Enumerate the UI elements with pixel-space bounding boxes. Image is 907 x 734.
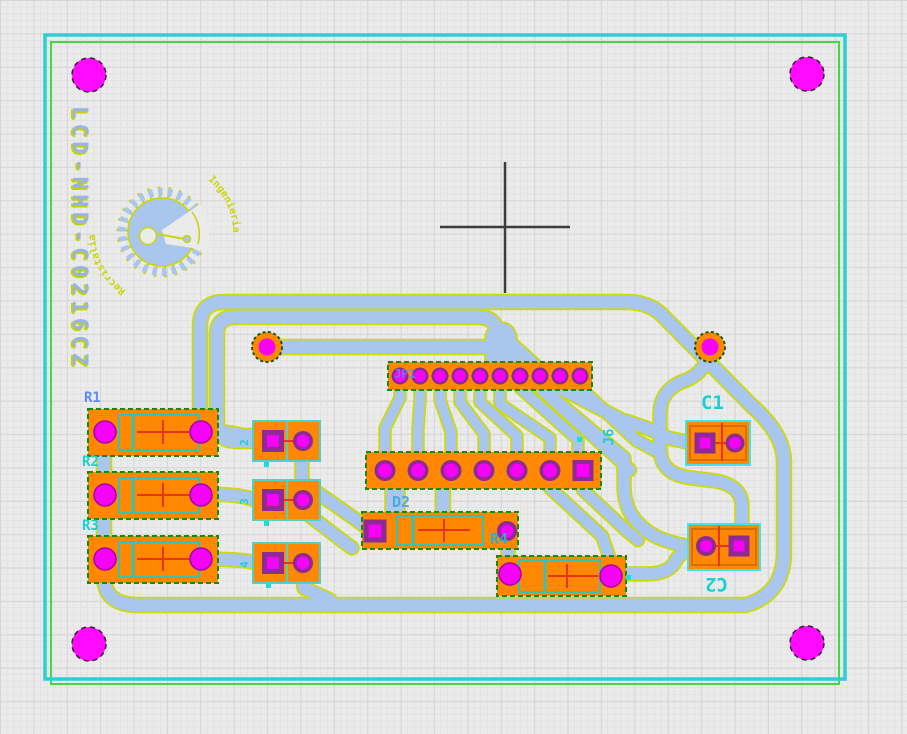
component-jumper-1[interactable] <box>253 421 320 461</box>
pcb-drawing-layer[interactable]: RecristaliaIngenieria <box>0 0 907 734</box>
component-jp1-header[interactable] <box>388 362 592 390</box>
pad[interactable] <box>190 484 212 506</box>
component-r3[interactable] <box>88 536 218 583</box>
pad[interactable] <box>190 421 212 443</box>
origin-dot <box>264 521 269 526</box>
label-c1[interactable]: C1 <box>701 394 724 413</box>
component-r1[interactable] <box>88 409 218 456</box>
pad[interactable] <box>94 484 116 506</box>
label-r4[interactable]: R4 <box>490 532 508 547</box>
component-c1[interactable] <box>686 421 750 465</box>
component-r2[interactable] <box>88 472 218 519</box>
label-c2[interactable]: C2 <box>705 574 728 593</box>
pad[interactable] <box>600 565 622 587</box>
component-header-7pin[interactable] <box>366 452 601 489</box>
board-name-silkscreen[interactable]: LCD-NHD-C0216CZ <box>68 106 92 371</box>
mounting-hole[interactable] <box>790 626 824 660</box>
origin-dot <box>266 583 271 588</box>
logo-text-right: Ingenieria <box>206 174 242 233</box>
label-j6[interactable]: J6 <box>602 429 616 446</box>
pad[interactable] <box>94 421 116 443</box>
label-r1[interactable]: R1 <box>84 391 101 405</box>
origin-dot <box>626 575 631 580</box>
origin-dot <box>264 462 269 467</box>
label-jumper-2[interactable]: 3 <box>239 498 250 505</box>
component-jumper-2[interactable] <box>253 480 320 520</box>
component-c2[interactable] <box>688 524 760 570</box>
label-r3[interactable]: R3 <box>82 519 99 533</box>
label-jp1[interactable]: JP1 <box>394 368 416 380</box>
pcb-canvas[interactable]: RecristaliaIngenieria LCD-NHD-C0216CZ R1… <box>0 0 907 734</box>
logo-text-left: Recristalia <box>86 234 127 296</box>
label-d2[interactable]: D2 <box>392 495 410 510</box>
pad[interactable] <box>94 548 116 570</box>
logo-gear[interactable]: RecristaliaIngenieria <box>86 174 242 297</box>
origin-dot <box>577 437 582 442</box>
via[interactable] <box>252 332 282 362</box>
mounting-hole[interactable] <box>72 58 106 92</box>
crosshair-marker <box>440 162 570 293</box>
mounting-hole[interactable] <box>72 627 106 661</box>
component-jumper-3[interactable] <box>253 543 320 583</box>
pad[interactable] <box>190 548 212 570</box>
pad[interactable] <box>499 563 521 585</box>
mounting-hole[interactable] <box>790 57 824 91</box>
via[interactable] <box>695 332 725 362</box>
label-jumper-3[interactable]: 4 <box>239 561 250 568</box>
label-jumper-1[interactable]: 2 <box>239 439 250 446</box>
label-r2[interactable]: R2 <box>82 455 99 469</box>
component-r4[interactable] <box>497 556 626 596</box>
